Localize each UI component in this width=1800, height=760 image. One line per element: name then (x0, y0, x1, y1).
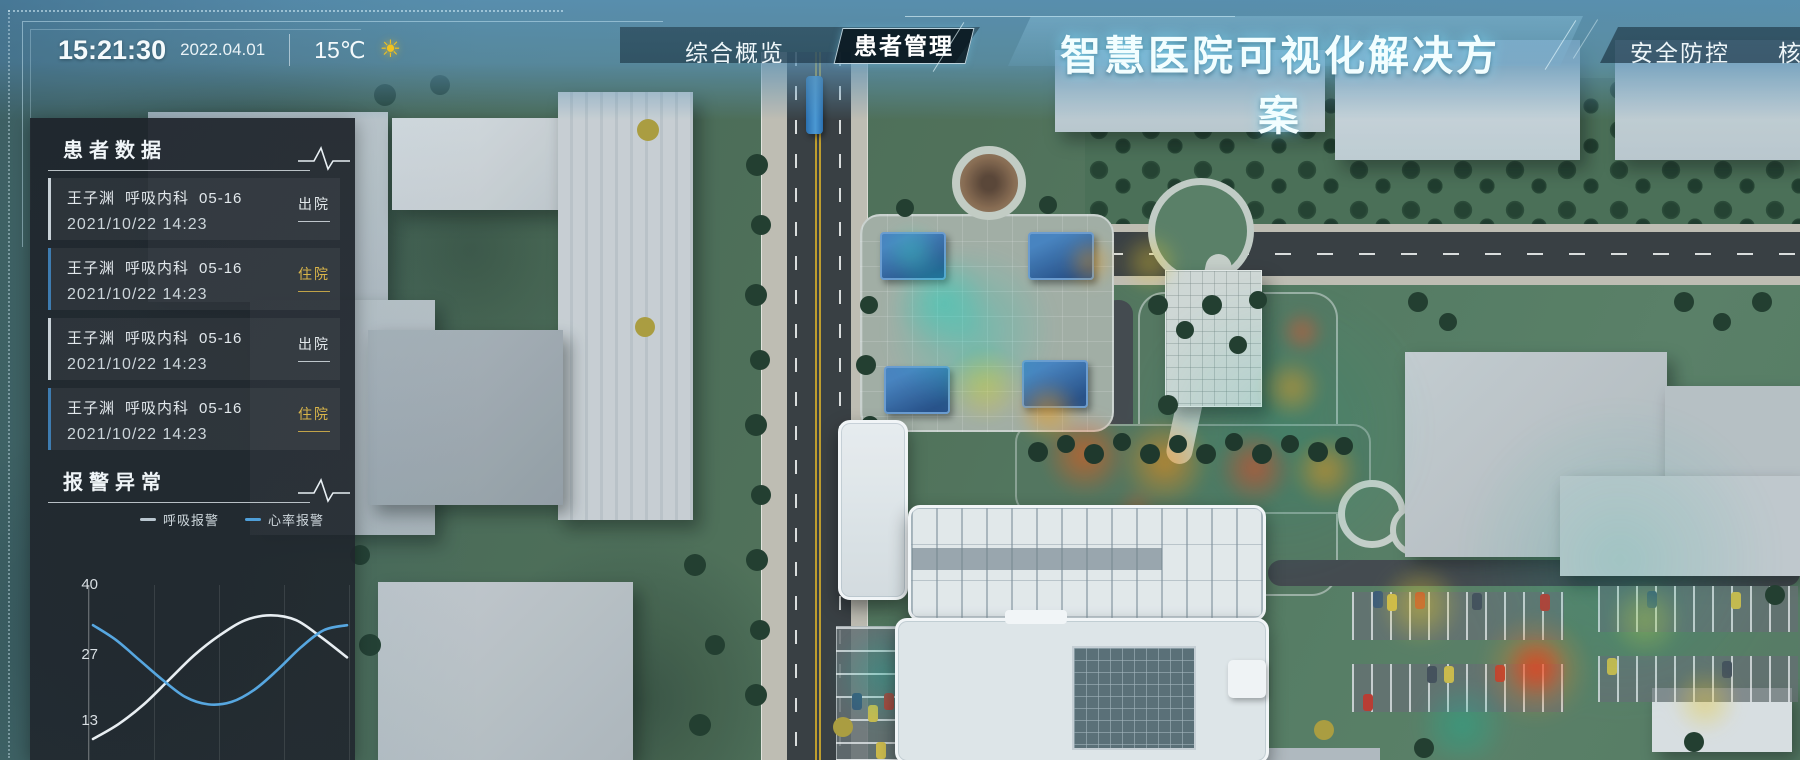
legend-marker (245, 518, 261, 521)
alarm-line-chart (88, 585, 351, 760)
building (1560, 476, 1800, 576)
header-bar: 15:21:30 2022.04.01 15℃ ☀ 综合概览 患者管理 智慧医院… (0, 0, 1800, 95)
roof-detail (1005, 610, 1067, 624)
canopy-pavilion (880, 232, 946, 280)
tab-security[interactable]: 安全防控 (1630, 34, 1730, 68)
tab-patient-management[interactable]: 患者管理 (834, 28, 975, 64)
building (368, 330, 563, 505)
legend-item-resp[interactable]: 呼吸报警 (140, 510, 219, 529)
sun-icon: ☀ (380, 38, 402, 62)
patient-info: 王子渊呼吸内科05-16 (67, 257, 328, 278)
status-badge: 出院 (298, 334, 330, 362)
canopy-pavilion (1022, 360, 1088, 408)
patient-list-item[interactable]: 王子渊呼吸内科05-16 2021/10/22 14:23 住院 (48, 388, 340, 450)
parking-lot (1598, 586, 1798, 632)
patient-time: 2021/10/22 14:23 (67, 356, 328, 374)
date: 2022.04.01 (180, 40, 265, 60)
legend-item-heart[interactable]: 心率报警 (245, 510, 324, 529)
patient-time: 2021/10/22 14:23 (67, 286, 328, 304)
clock: 15:21:30 (58, 35, 166, 66)
parking-lot (1352, 664, 1564, 712)
building (378, 582, 633, 760)
roof-skylight (1072, 646, 1196, 750)
status-badge: 住院 (298, 264, 330, 292)
canopy-pavilion (1028, 232, 1094, 280)
patient-info: 王子渊呼吸内科05-16 (67, 187, 328, 208)
parking-lot (1598, 656, 1798, 702)
patient-info: 王子渊呼吸内科05-16 (67, 397, 328, 418)
sidewalk (761, 52, 788, 760)
roof-detail (1228, 660, 1266, 698)
temperature: 15℃ (314, 37, 365, 64)
section-title: 报警异常 (63, 466, 167, 495)
section-underline (48, 502, 310, 503)
patient-section-header: 患者数据 (63, 134, 325, 163)
status-badge: 出院 (298, 194, 330, 222)
building (1165, 270, 1262, 407)
tab-overview[interactable]: 综合概览 (685, 34, 785, 68)
alarm-section-header: 报警异常 (63, 466, 325, 495)
divider (289, 34, 290, 66)
parking-lot (1352, 592, 1564, 640)
dotted-line-top (8, 10, 563, 12)
page-title: 智慧医院可视化解决方案 (1040, 22, 1520, 142)
status-badge: 住院 (298, 404, 330, 432)
park-circle (1148, 178, 1254, 284)
roof-band (912, 548, 1162, 570)
patient-list-item[interactable]: 王子渊呼吸内科05-16 2021/10/22 14:23 出院 (48, 318, 340, 380)
patient-list-item[interactable]: 王子渊呼吸内科05-16 2021/10/22 14:23 住院 (48, 248, 340, 310)
ecg-icon (298, 476, 350, 506)
patient-time: 2021/10/22 14:23 (67, 216, 328, 234)
patient-info: 王子渊呼吸内科05-16 (67, 327, 328, 348)
tab-truncated[interactable]: 核 (1778, 34, 1800, 68)
legend-marker (140, 518, 156, 521)
datetime-weather: 15:21:30 2022.04.01 15℃ ☀ (58, 34, 401, 66)
fountain (952, 146, 1026, 220)
ecg-icon (298, 144, 350, 174)
chart-legend: 呼吸报警 心率报警 (140, 510, 324, 529)
patient-list-item[interactable]: 王子渊呼吸内科05-16 2021/10/22 14:23 出院 (48, 178, 340, 240)
section-underline (48, 170, 310, 171)
canopy-pavilion (884, 366, 950, 414)
dotted-line-left (8, 10, 10, 758)
patient-time: 2021/10/22 14:23 (67, 426, 328, 444)
selected-building-wing[interactable] (838, 420, 908, 600)
section-title: 患者数据 (63, 134, 167, 163)
dashboard: 15:21:30 2022.04.01 15℃ ☀ 综合概览 患者管理 智慧医院… (0, 0, 1800, 760)
